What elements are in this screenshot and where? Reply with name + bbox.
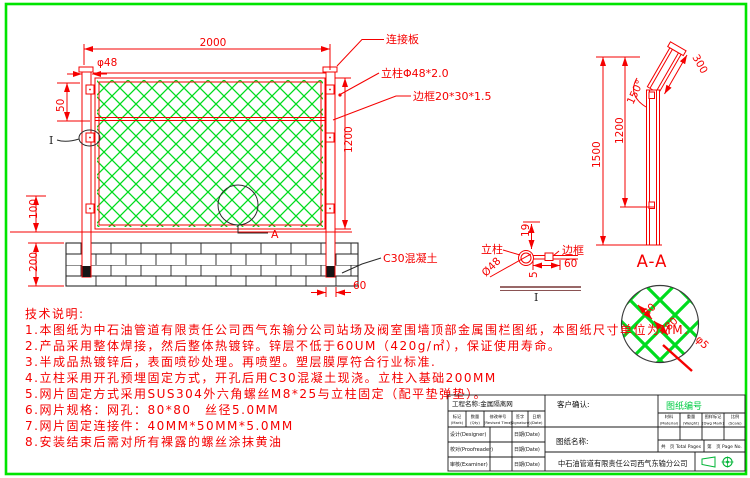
rev-col-qty-zh: 数量	[471, 413, 479, 420]
dim-embed-text: 60	[353, 280, 366, 292]
plate-label: 连接板	[386, 32, 419, 46]
detail-i-mark: I	[534, 291, 538, 304]
dim-len-60: 60	[533, 258, 577, 270]
spec-col-material-zh: 材料	[665, 413, 674, 420]
dim-angle-text: 150°	[625, 78, 647, 106]
pages-total: 共 页 Total Pages	[661, 443, 702, 450]
frame-label: 边框20*30*1.5	[413, 90, 492, 103]
title-block: 工程名称:金属隔离网 标记 (Mark) 数量 (Qty) 修改单号 (Revi…	[448, 395, 745, 471]
detail-post-label: 立柱	[481, 242, 503, 256]
rev-col-revno-zh: 修改单号	[490, 413, 507, 420]
cad-drawing-sheet: 2000 φ48 50 1200 100	[0, 0, 750, 478]
concrete-label: C30混凝土	[383, 251, 438, 265]
rev-col-revno-en: (Revised Time)	[484, 420, 513, 425]
sign-designer-date: 日期(Date)	[514, 432, 540, 438]
left-post	[82, 72, 91, 277]
rev-col-sign-en: (Signature)	[509, 420, 531, 425]
front-view: 2000 φ48 50 1200 100	[10, 32, 492, 297]
tech-notes: 技术说明: 1.本图纸为中石油管道有限责任公司西气东输分公司站场及阀室围墙顶部金…	[25, 306, 689, 449]
section-a-label: A	[271, 228, 279, 241]
drawing-canvas: 2000 φ48 50 1200 100	[0, 0, 750, 478]
tech-note-7: 7.网片固定连接件：40MM*50MM*5.0MM	[25, 418, 294, 433]
left-post-cap	[79, 67, 93, 72]
sign-examiner-date: 日期(Date)	[514, 462, 540, 468]
dim-total-height-text: 1500	[591, 141, 603, 168]
sign-proofreader: 校对(Proofreader)	[450, 446, 493, 453]
rev-col-sign-zh: 签字	[516, 413, 524, 419]
tech-note-2: 2.产品采用整体焊接，然后整体热镀锌。锌层不低于60UM（420g/㎡），保证使…	[25, 338, 561, 353]
dim-base-text: 100	[28, 199, 40, 219]
spec-col-scale-zh: 比例	[731, 413, 739, 420]
dim-angle: 150°	[625, 78, 647, 107]
dim-width-text: 2000	[200, 37, 227, 49]
tech-note-4: 4.立柱采用开孔预埋固定方式，开孔后用C30混凝土现浇。立柱入基础200MM	[25, 370, 497, 385]
dim-wall-text: 200	[28, 252, 40, 272]
rev-col-mark-en: (Mark)	[451, 420, 464, 425]
side-view: 150° 300 1500 1200 A-A	[591, 42, 710, 271]
plate-leader: 连接板	[337, 32, 419, 66]
dim-thk-text: 5	[528, 271, 540, 278]
dim-height: 1200	[335, 78, 355, 229]
tech-note-6: 6.网片规格：网孔：80*80 丝径5.0MM	[25, 402, 279, 417]
dim-dia-text: Ø48	[480, 255, 504, 279]
dim-panel-height-text: 1200	[614, 117, 626, 144]
post-label: 立柱Φ48*2.0	[381, 66, 449, 80]
project-name: 工程名称:金属隔离网	[452, 399, 513, 408]
dim-top-gap-text: 50	[55, 99, 67, 112]
spec-col-dwgmark-en: (Dwg Mark)	[702, 421, 724, 426]
pages-no: 第 页 Page No.	[707, 443, 742, 450]
tech-note-5: 5.网片固定方式采用SUS304外六角螺丝M8*25与立柱固定（配平垫弹垫）。	[25, 386, 487, 401]
spec-col-weight-en: (Weight)	[683, 421, 700, 426]
section-aa-label: A-A	[637, 252, 668, 271]
spec-col-material-en: (Material)	[660, 421, 679, 426]
tech-note-3: 3.半成品热镀锌后，表面喷砂处理。再喷塑。塑层膜厚符合行业标准.	[25, 354, 436, 369]
tech-note-8: 8.安装结束后需对所有裸露的螺丝涂抹黄油	[25, 434, 282, 449]
rev-col-mark-zh: 标记	[453, 413, 462, 420]
dim-offset-text: 19	[520, 224, 532, 237]
drawing-no-label: 图纸编号	[666, 400, 702, 412]
tech-note-1: 1.本图纸为中石油管道有限责任公司西气东输分公司站场及阀室围墙顶部金属围栏图纸，…	[25, 322, 689, 337]
sign-designer: 设计(Designer)	[450, 431, 486, 438]
dim-offset-19: 19	[520, 222, 540, 249]
mesh-panel	[97, 80, 323, 227]
dim-len-text: 60	[564, 258, 577, 270]
customer-confirm-label: 客户确认:	[557, 399, 590, 409]
rev-col-date-en: (Date)	[530, 420, 543, 425]
sign-proofreader-date: 日期(Date)	[514, 447, 540, 453]
dim-width: 2000	[84, 37, 330, 70]
spec-col-weight-zh: 重量	[687, 413, 695, 420]
dim-height-text: 1200	[343, 126, 355, 153]
spec-col-dwgmark-zh: 图样标记	[705, 413, 723, 420]
drawing-name-label: 图纸名称:	[556, 436, 589, 446]
rev-col-qty-en: (Qty)	[470, 420, 480, 425]
frame-leader: 边框20*30*1.5	[333, 90, 492, 120]
dim-post-dia-text: φ48	[97, 57, 117, 69]
dim-wall: 200	[28, 243, 64, 286]
side-clip-top	[649, 92, 655, 99]
left-post-footing	[83, 266, 91, 277]
spec-col-scale-en: (Scale)	[728, 421, 742, 426]
tech-notes-title: 技术说明:	[25, 306, 85, 321]
side-post	[647, 90, 660, 245]
company-name: 中石油管道有限责任公司西气东输分公司	[558, 459, 687, 468]
detail-i-label: I	[49, 134, 53, 147]
dim-top-section-text: 300	[689, 53, 709, 76]
projection-symbol-icon	[702, 457, 734, 468]
right-post	[326, 72, 335, 277]
concrete-wall	[66, 243, 358, 286]
frame-section-rect	[545, 253, 553, 261]
detail-i-view: 19 立柱 Ø48 边框 60 5 I	[480, 222, 584, 304]
detail-frame-label: 边框	[562, 244, 584, 257]
dim-base: 100	[26, 196, 46, 232]
side-clip-bottom	[649, 202, 655, 209]
right-post-footing	[327, 266, 335, 277]
sign-examiner: 审核(Examiner)	[450, 461, 488, 468]
